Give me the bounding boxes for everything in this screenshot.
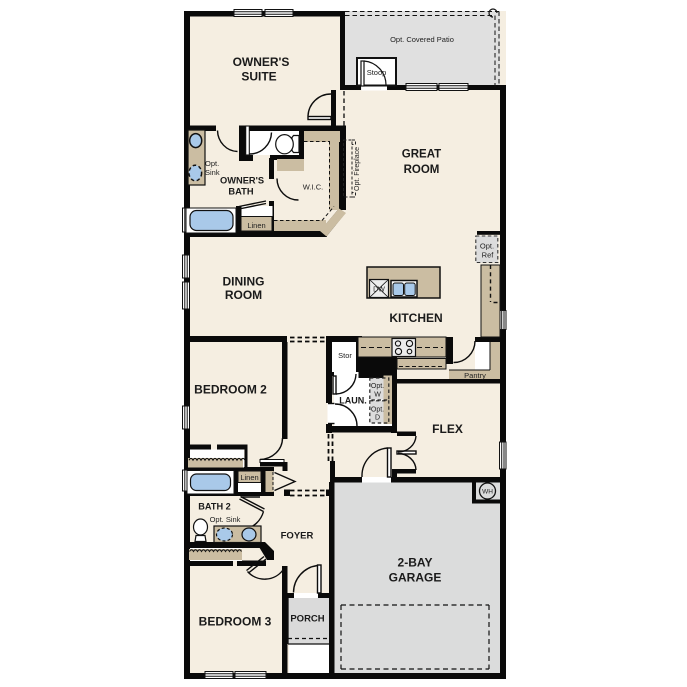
svg-text:Linen: Linen [240, 473, 258, 482]
svg-text:W: W [374, 392, 381, 399]
svg-text:BEDROOM 3: BEDROOM 3 [199, 615, 272, 629]
svg-text:GREAT: GREAT [402, 148, 441, 160]
svg-text:BATH 2: BATH 2 [198, 502, 231, 512]
svg-text:Pantry: Pantry [464, 371, 486, 380]
svg-text:Opt.: Opt. [371, 407, 384, 414]
svg-text:Ref: Ref [482, 250, 495, 259]
svg-text:W.I.C.: W.I.C. [303, 183, 323, 192]
svg-text:Linen: Linen [247, 221, 265, 230]
svg-text:WH: WH [482, 489, 493, 496]
svg-text:OWNER'S: OWNER'S [220, 176, 264, 186]
svg-text:OWNER'S: OWNER'S [233, 55, 290, 69]
svg-text:DINING: DINING [223, 274, 265, 288]
svg-text:BATH: BATH [228, 187, 253, 197]
svg-text:Opt. Fireplace: Opt. Fireplace [354, 147, 361, 191]
svg-text:ROOM: ROOM [404, 164, 440, 176]
svg-text:2-BAY: 2-BAY [398, 556, 433, 570]
svg-text:Opt.: Opt. [480, 241, 494, 250]
svg-text:D: D [375, 415, 380, 422]
svg-text:Stoop: Stoop [367, 68, 387, 77]
svg-text:KITCHEN: KITCHEN [389, 311, 442, 325]
svg-text:ROOM: ROOM [225, 288, 262, 302]
svg-text:LAUN.: LAUN. [339, 396, 367, 406]
svg-text:Opt.: Opt. [205, 159, 219, 168]
svg-text:Opt.: Opt. [371, 383, 384, 390]
svg-text:Stor: Stor [338, 351, 352, 360]
svg-text:Opt. Sink: Opt. Sink [210, 515, 241, 524]
svg-text:GARAGE: GARAGE [389, 571, 442, 585]
svg-text:SUITE: SUITE [241, 70, 276, 84]
svg-text:Opt. Covered Patio: Opt. Covered Patio [390, 35, 454, 44]
svg-text:Sink: Sink [205, 168, 220, 177]
svg-text:PORCH: PORCH [290, 614, 324, 625]
svg-text:FLEX: FLEX [432, 422, 463, 436]
svg-text:DW: DW [373, 287, 385, 294]
svg-text:BEDROOM 2: BEDROOM 2 [194, 383, 267, 397]
svg-text:FOYER: FOYER [281, 531, 314, 542]
